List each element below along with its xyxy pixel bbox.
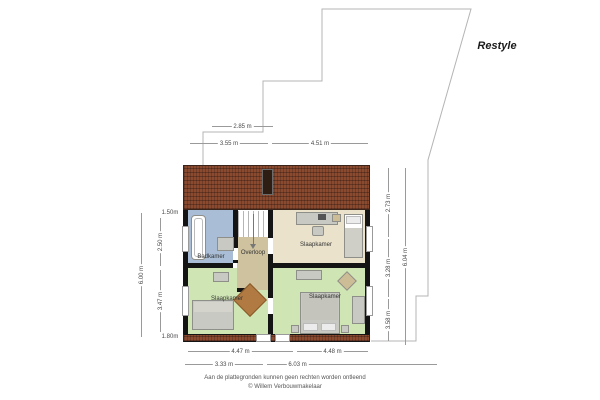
side-table-left xyxy=(291,325,299,333)
dim-bottom-1-label: 4.47 m xyxy=(229,349,251,355)
dim-top-3-label: 4.51 m xyxy=(309,141,331,147)
floorplan-page: Restyle xyxy=(0,0,600,400)
dim-left-inner-1-label: 2.50 m xyxy=(158,231,164,253)
wall-center-spine xyxy=(268,210,273,334)
dim-left-inner-2: 3.47 m xyxy=(160,270,161,332)
dim-bottom-2: 4.48 m xyxy=(297,351,368,352)
dim-left-outer-label: 6.00 m xyxy=(139,264,145,286)
single-bed-blanket xyxy=(345,228,362,257)
door-slaapkamer-right xyxy=(268,298,273,314)
window-bottom-wall-2 xyxy=(275,334,290,342)
pillow-right xyxy=(321,323,336,331)
dim-left-outer: 6.00 m xyxy=(141,213,142,337)
label-overloop: Overloop xyxy=(241,250,265,256)
dim-left-inner-2-label: 3.47 m xyxy=(158,290,164,312)
chimney xyxy=(262,169,273,195)
dim-height-180: 1.80m xyxy=(161,334,180,340)
single-bed-pillow xyxy=(346,216,361,224)
roof-section xyxy=(183,165,370,210)
side-table-right xyxy=(341,325,349,333)
dim-right-outer: 6.04 m xyxy=(405,168,406,345)
door-slaapkamer-top xyxy=(268,238,273,254)
wall-row-divider-right xyxy=(273,263,365,268)
dim-right-inner-1: 2.73 m xyxy=(388,168,389,237)
cabinet xyxy=(213,272,229,282)
dim-bottom-4: 6.03 m xyxy=(267,364,437,365)
dim-right-outer-label: 6.04 m xyxy=(403,245,409,267)
dresser xyxy=(296,270,322,280)
stairs-arrow-head xyxy=(250,244,256,249)
dim-top-1-label: 2.85 m xyxy=(231,124,253,130)
footer-disclaimer: Aan de plattegronden kunnen geen rechten… xyxy=(0,375,570,381)
window-bottom-wall-1 xyxy=(256,334,271,342)
dim-right-inner-2-label: 3.28 m xyxy=(386,257,392,279)
dim-right-inner-3-label: 3.58 m xyxy=(386,309,392,331)
sofa-cushion xyxy=(194,302,232,312)
dim-height-150: 1.50m xyxy=(161,210,180,216)
desk-chair xyxy=(312,226,324,236)
dim-top-3: 4.51 m xyxy=(272,143,368,144)
plan-title: Restyle xyxy=(477,40,516,52)
label-badkamer: Badkamer xyxy=(197,254,224,260)
label-slaapkamer-bottom-right: Slaapkamer xyxy=(309,294,341,300)
dim-bottom-3-label: 3.33 m xyxy=(213,362,235,368)
dim-bottom-2-label: 4.48 m xyxy=(321,349,343,355)
window-bottom-left xyxy=(182,286,189,316)
dim-top-1: 2.85 m xyxy=(212,126,273,127)
wardrobe xyxy=(352,296,365,324)
dim-bottom-3: 3.33 m xyxy=(185,364,263,365)
label-slaapkamer-bottom-left: Slaapkamer xyxy=(211,296,243,302)
window-slaapkamer-top xyxy=(366,226,373,252)
label-slaapkamer-top: Slaapkamer xyxy=(300,242,332,248)
window-badkamer xyxy=(182,226,189,252)
dim-top-2: 3.55 m xyxy=(190,143,268,144)
bathtub-inner xyxy=(194,218,203,257)
laptop xyxy=(318,214,326,220)
pillow-left xyxy=(303,323,318,331)
dim-bottom-1: 4.47 m xyxy=(188,351,293,352)
wall-row-divider-left xyxy=(188,263,233,268)
dim-right-inner-3: 3.58 m xyxy=(388,299,389,341)
nightstand xyxy=(332,214,341,222)
dim-left-inner-1: 2.50 m xyxy=(160,218,161,266)
dim-right-inner-2: 3.28 m xyxy=(388,239,389,297)
footer-copyright: © Willem Verbouwmakelaar xyxy=(0,384,570,390)
dim-right-inner-1-label: 2.73 m xyxy=(386,191,392,213)
dim-top-2-label: 3.55 m xyxy=(218,141,240,147)
washbasin xyxy=(217,237,234,251)
dim-bottom-4-label: 6.03 m xyxy=(286,362,308,368)
window-bottom-right xyxy=(366,286,373,316)
stairs-arrow xyxy=(253,214,254,244)
